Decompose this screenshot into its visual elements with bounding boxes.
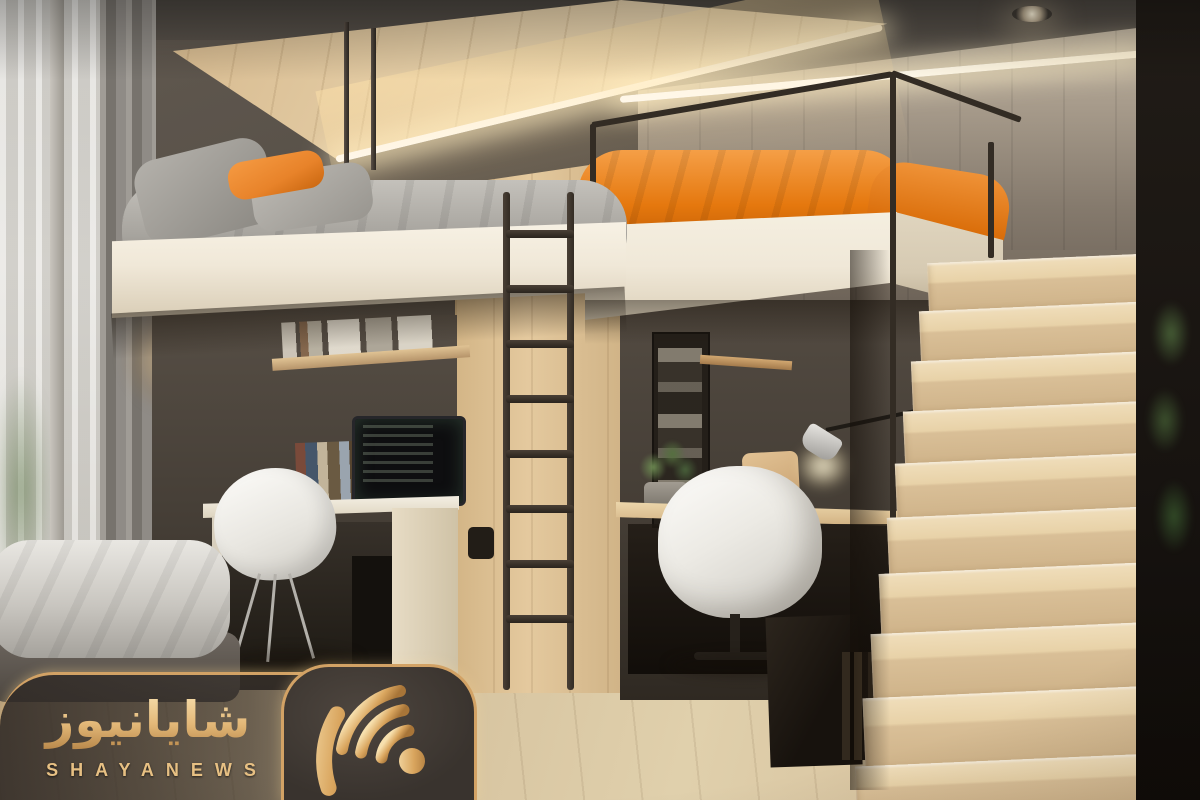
staircase-shadow [850, 250, 890, 790]
ladder-rung [506, 560, 574, 568]
hanging-rod-right [371, 28, 376, 170]
ladder-rung [506, 395, 574, 403]
ladder-rung [506, 615, 574, 623]
hanging-rod-left [344, 22, 349, 168]
screen-content [363, 425, 433, 485]
ladder-rung [506, 230, 574, 238]
left-desk-front-panel [392, 508, 458, 690]
ladder-rung [506, 285, 574, 293]
recessed-spotlight [1012, 6, 1052, 22]
wood-staircase [850, 240, 1165, 800]
watermark-icon-tile [281, 664, 477, 800]
ladder-rung [506, 340, 574, 348]
plant-shelf [1138, 290, 1198, 580]
imac-monitor [352, 416, 466, 506]
watermark-latin-wordmark: SHAYANEWS [20, 760, 282, 781]
floor-mattress [0, 540, 230, 658]
ladder-rung [506, 450, 574, 458]
loft-bedroom-photo: شایانیوز SHAYANEWS [0, 0, 1200, 800]
sliding-door-handle [468, 527, 494, 559]
watermark-persian-wordmark: شایانیوز [14, 680, 282, 760]
white-swivel-chair [658, 466, 822, 618]
ladder-rung [506, 505, 574, 513]
wifi-signal-icon [294, 675, 460, 799]
